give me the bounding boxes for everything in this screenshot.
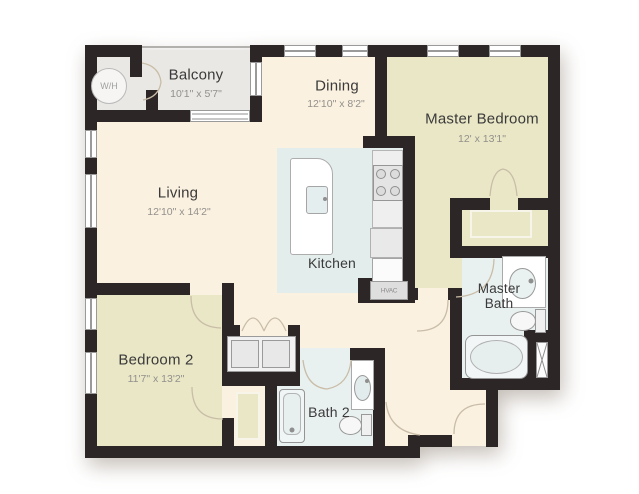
bath2-sink: [354, 375, 371, 401]
wall: [448, 288, 462, 300]
wall: [375, 45, 387, 148]
sliding-door: [190, 110, 250, 122]
wall: [85, 283, 190, 295]
balcony-railing: [142, 46, 250, 48]
floor-plan: Balcony 10'1" x 5'7" Dining 12'10" x 8'2…: [0, 0, 639, 494]
dining-label: Dining: [315, 78, 359, 95]
wall: [85, 446, 420, 458]
floor-plan-drawing: Balcony 10'1" x 5'7" Dining 12'10" x 8'2…: [0, 0, 639, 494]
master-toilet-tank: [535, 309, 546, 333]
wall: [450, 300, 462, 390]
water-heater-label: W/H: [100, 81, 118, 91]
window: [427, 45, 459, 57]
wall: [222, 418, 234, 458]
master-bath-label: Master Bath: [471, 281, 527, 311]
wall: [222, 283, 234, 295]
wall: [250, 96, 262, 122]
window: [85, 174, 97, 228]
wall: [408, 435, 452, 447]
bedroom2-closet-shelf: [236, 392, 260, 440]
wall: [518, 198, 548, 210]
master-bedroom-label: Master Bedroom: [425, 111, 539, 128]
wall: [130, 45, 142, 77]
bath2-label: Bath 2: [308, 404, 350, 420]
master-bedroom-dims: 12' x 13'1": [458, 133, 506, 145]
washer: [231, 340, 259, 368]
wall: [459, 45, 489, 57]
wall: [450, 378, 560, 390]
window: [85, 352, 97, 394]
window: [85, 298, 97, 330]
bath2-toilet-tank: [361, 414, 372, 436]
master-bedroom-floor: [415, 148, 548, 198]
bath2-tub-basin: [283, 393, 301, 435]
linen-closet: [536, 342, 548, 378]
wall: [85, 158, 97, 174]
living-dims: 12'10" x 14'2": [147, 206, 210, 218]
window: [250, 62, 262, 96]
balcony-dims: 10'1" x 5'7": [170, 88, 222, 100]
window: [284, 45, 316, 57]
wall: [250, 45, 262, 62]
master-toilet-bowl: [510, 311, 536, 331]
walkin-closet-shelf: [470, 210, 532, 238]
stove: [373, 165, 403, 201]
dining-dims: 12'10" x 8'2": [307, 98, 365, 110]
window: [85, 130, 97, 158]
bedroom2-label: Bedroom 2: [118, 352, 193, 369]
living-label: Living: [158, 185, 198, 202]
dryer: [262, 340, 290, 368]
wall: [350, 348, 385, 360]
window: [342, 45, 368, 57]
wall: [548, 45, 560, 390]
wall: [373, 348, 385, 446]
wall: [222, 372, 300, 386]
wall: [85, 110, 190, 122]
wall: [316, 45, 342, 57]
wall: [265, 386, 277, 446]
window: [489, 45, 521, 57]
bedroom2-dims: 11'7" x 13'2": [128, 373, 185, 385]
bedroom2-floor: [97, 295, 222, 446]
wall: [363, 136, 415, 148]
kitchen-label: Kitchen: [308, 255, 356, 271]
balcony-label: Balcony: [169, 67, 224, 84]
island-sink: [306, 186, 328, 214]
master-tub-basin: [470, 340, 523, 374]
wall: [486, 390, 498, 447]
closet-door-opening: [490, 198, 518, 210]
wall: [85, 330, 97, 352]
hvac-label: HVAC: [381, 288, 397, 295]
cabinet: [370, 228, 403, 258]
master-bedroom-floor: [415, 198, 450, 288]
wall: [403, 148, 415, 280]
